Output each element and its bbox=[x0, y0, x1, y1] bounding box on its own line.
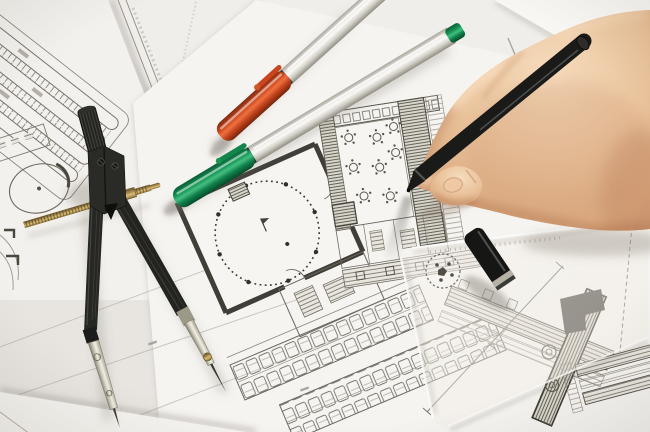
photo-stage bbox=[0, 0, 650, 432]
photo-canvas bbox=[0, 0, 650, 432]
vignette bbox=[0, 0, 650, 432]
